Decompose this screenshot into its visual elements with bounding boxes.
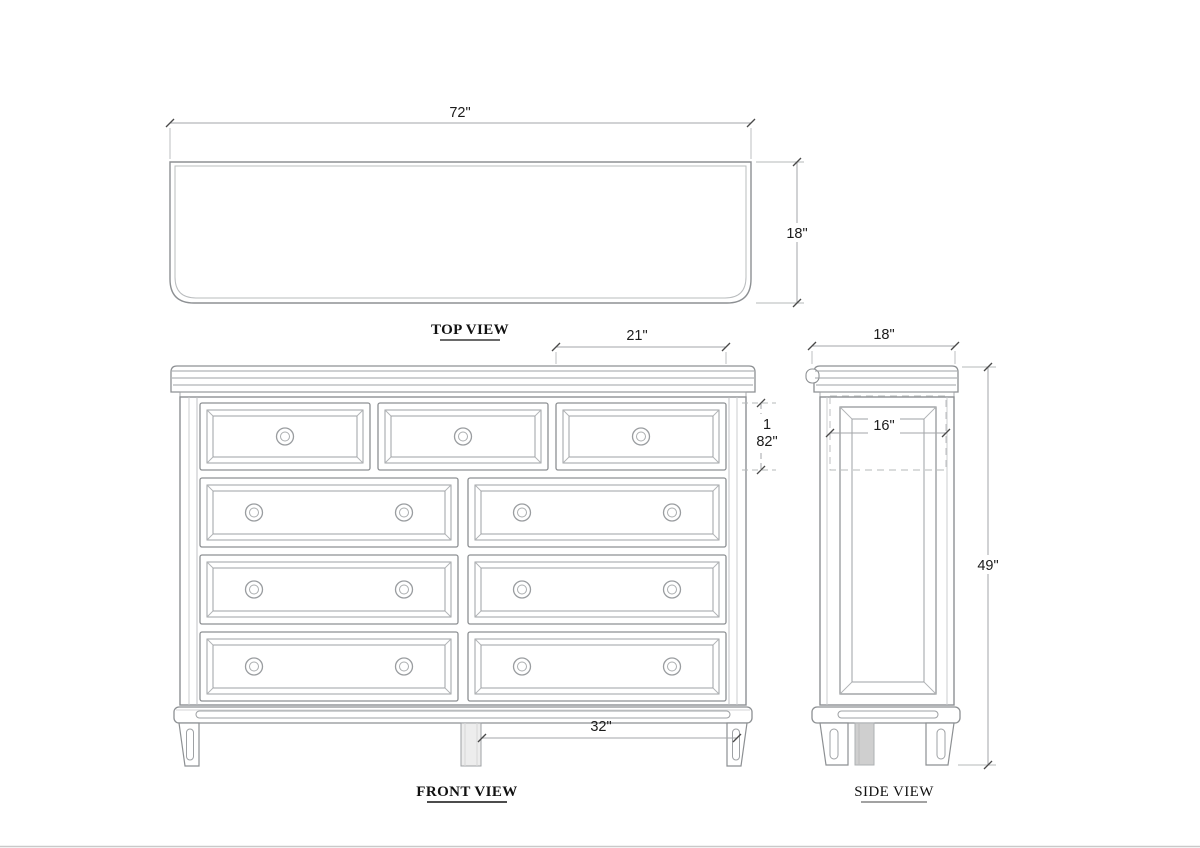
side-back-leg — [926, 723, 954, 765]
drawing-canvas: 72" 18" TOP VIEW — [0, 0, 1200, 848]
front-drawer-height-dimension: 1 82" — [742, 399, 784, 474]
drawer-height-dim-label-line1: 1 — [763, 417, 771, 433]
drawer-width-dim-label: 21" — [626, 328, 647, 344]
side-base-rail — [812, 707, 960, 723]
side-front-leg — [820, 723, 848, 765]
side-height-dim-label: 49" — [977, 558, 998, 574]
side-depth-dim-label: 18" — [873, 327, 894, 343]
top-view: 72" 18" TOP VIEW — [166, 105, 812, 340]
front-center-leg — [461, 723, 481, 766]
drawer-row2-left — [200, 478, 458, 547]
drawer-row3-right — [468, 555, 726, 624]
side-drawer-depth-dim-label: 16" — [873, 418, 894, 434]
side-drawer-depth-dimension: 16" — [826, 416, 950, 437]
front-view: 21" 1 82" 32" FRONT VIEW — [171, 328, 784, 802]
drawer-top-right — [556, 403, 726, 470]
side-cornice — [806, 366, 958, 397]
side-center-leg — [855, 723, 874, 765]
drawer-top-center — [378, 403, 548, 470]
front-left-leg — [179, 723, 199, 766]
top-panel-outline — [170, 162, 751, 303]
top-view-width-dimension: 72" — [166, 105, 755, 159]
front-drawer-width-dimension: 21" — [552, 328, 730, 364]
drawer-row4-left — [200, 632, 458, 701]
top-view-depth-dimension: 18" — [756, 158, 812, 307]
drawer-height-dim-label-line2: 82" — [756, 434, 777, 450]
side-panel — [840, 407, 936, 694]
front-cornice — [171, 366, 755, 397]
front-base-rail — [174, 707, 752, 723]
drawer-row4-right — [468, 632, 726, 701]
drawer-row3-left — [200, 555, 458, 624]
top-depth-dim-label: 18" — [786, 226, 807, 242]
side-depth-dimension: 18" — [808, 327, 959, 364]
side-view: 18" — [806, 327, 1005, 802]
dresser-technical-drawing: 72" 18" TOP VIEW — [0, 0, 1200, 848]
drawer-row2-right — [468, 478, 726, 547]
top-width-dim-label: 72" — [449, 105, 470, 121]
side-view-title: SIDE VIEW — [854, 784, 934, 800]
front-view-title: FRONT VIEW — [416, 784, 517, 800]
leg-spacing-dim-label: 32" — [590, 719, 611, 735]
top-view-title: TOP VIEW — [431, 322, 509, 338]
drawer-top-left — [200, 403, 370, 470]
front-right-leg — [727, 723, 747, 766]
side-height-dimension: 49" — [958, 363, 1005, 769]
